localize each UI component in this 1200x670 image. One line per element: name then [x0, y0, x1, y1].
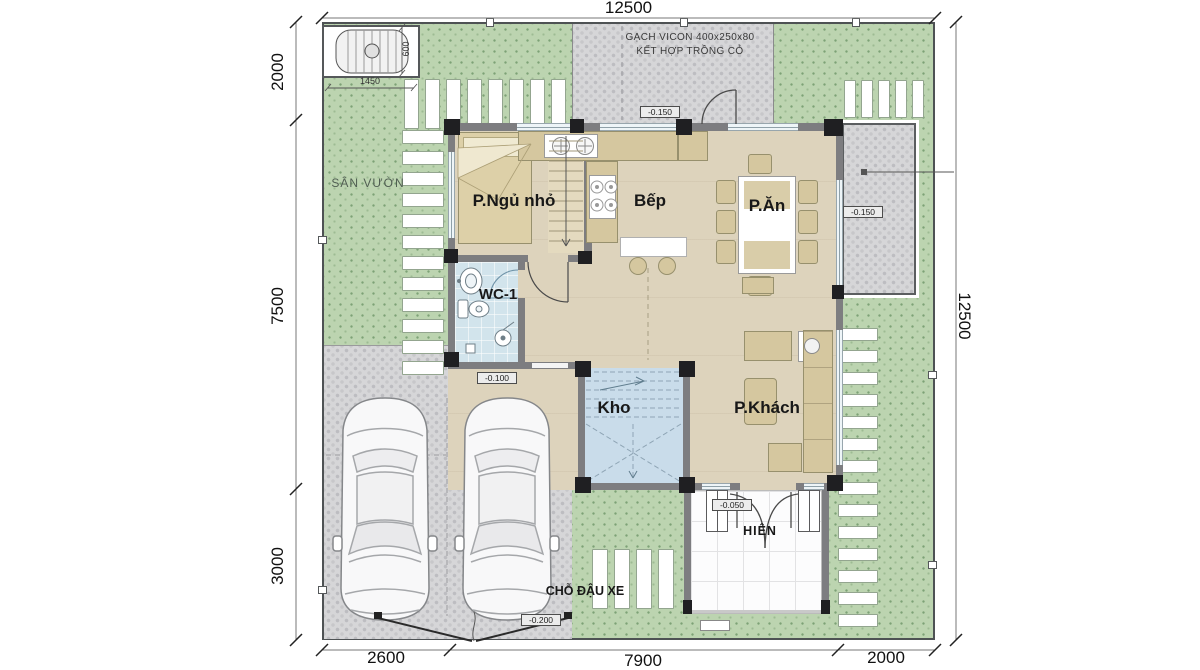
stepping-stone	[838, 548, 878, 561]
kitchen-counter	[518, 131, 678, 161]
wall	[518, 298, 525, 362]
stepping-stone	[530, 79, 545, 129]
stepping-stone	[838, 460, 878, 473]
column	[570, 119, 584, 133]
table-runner	[744, 241, 790, 269]
fence-post	[318, 586, 327, 594]
room-label-storage: Kho	[588, 398, 640, 418]
room-label-garden: SÂN VƯỜN	[322, 176, 414, 190]
elevation-marker: -0.100	[477, 372, 517, 384]
stepping-stone	[467, 79, 482, 129]
dimension-top: 12500	[322, 0, 935, 18]
sofa-seat	[768, 443, 802, 472]
wall	[796, 483, 804, 490]
stepping-stone	[402, 298, 444, 312]
stepping-stone	[488, 79, 503, 129]
storage-floor	[581, 368, 683, 483]
room-label-parking: CHỖ ĐẬU XE	[518, 584, 652, 598]
stepping-stone	[592, 549, 608, 609]
stepping-stone	[895, 80, 907, 118]
stepping-stone	[402, 130, 444, 144]
porch-column	[821, 600, 830, 614]
column	[575, 361, 591, 377]
dimension-septic-height: 600	[401, 37, 411, 61]
chair	[798, 240, 818, 264]
column	[444, 249, 458, 263]
stepping-stone	[402, 193, 444, 207]
porch-wall	[684, 490, 691, 612]
window	[728, 123, 798, 131]
patio-door	[836, 180, 843, 285]
wc-floor	[455, 262, 518, 362]
window	[448, 152, 455, 238]
column	[444, 119, 460, 135]
column	[827, 475, 843, 491]
chair	[748, 154, 772, 174]
window	[804, 483, 824, 490]
column	[578, 251, 592, 264]
stepping-stone	[402, 361, 444, 375]
stepping-stone	[404, 79, 419, 129]
room-label-living: P.Khách	[710, 398, 824, 418]
column	[824, 119, 843, 136]
stove-icon	[544, 134, 598, 158]
stool	[629, 257, 647, 275]
column	[679, 361, 695, 377]
stepping-stone	[838, 570, 878, 583]
dimension-left-2: 7500	[268, 278, 288, 334]
stepping-stone	[844, 80, 856, 118]
porch-step	[691, 610, 822, 613]
stepping-stone	[838, 328, 878, 341]
room-label-kitchen: Bếp	[620, 191, 680, 211]
stepping-stone	[425, 79, 440, 129]
floor-plan-canvas: -0.150 -0.150 -0.100 -0.050 -0.200 GẠCH …	[0, 0, 1200, 670]
stepping-stone	[402, 340, 444, 354]
stepping-stone	[861, 80, 873, 118]
fence-post	[928, 371, 937, 379]
dimension-bottom-1: 2600	[346, 648, 426, 668]
window	[600, 123, 676, 131]
stepping-stone	[838, 504, 878, 517]
stepping-stone	[402, 256, 444, 270]
dimension-left-1: 2000	[268, 44, 288, 100]
stepping-stone	[838, 372, 878, 385]
room-label-wc: WC-1	[466, 286, 530, 303]
stool	[658, 257, 676, 275]
column	[832, 285, 844, 299]
window	[517, 123, 570, 131]
window	[702, 483, 730, 490]
door-sidelight	[798, 490, 820, 532]
cooktop-icon	[589, 175, 616, 219]
stepping-stone	[402, 214, 444, 228]
stepping-stone	[838, 526, 878, 539]
backyard-note-line2: KẾT HỢP TRỒNG CỎ	[590, 46, 790, 57]
door-sidelight	[706, 490, 728, 532]
stepping-stone	[402, 151, 444, 165]
wall	[578, 483, 690, 490]
elevation-marker: -0.050	[712, 499, 752, 511]
island-counter	[620, 237, 687, 257]
stepping-stone	[402, 319, 444, 333]
room-label-bedroom: P.Ngủ nhỏ	[458, 191, 570, 211]
wall	[692, 123, 728, 131]
lamp-icon	[804, 338, 820, 354]
elevation-marker: -0.200	[521, 614, 561, 626]
stepping-stone	[838, 438, 878, 451]
elevation-marker: -0.150	[640, 106, 680, 118]
wall	[730, 483, 740, 490]
room-label-porch: HIÊN	[730, 524, 790, 538]
tv-bench	[742, 277, 774, 294]
wall	[448, 255, 528, 262]
dimension-right: 12500	[954, 286, 974, 346]
porch-column	[683, 600, 692, 614]
stepping-stone	[838, 394, 878, 407]
fence-post	[928, 561, 937, 569]
chair	[716, 240, 736, 264]
room-label-dining: P.Ăn	[732, 196, 802, 216]
wall	[578, 365, 585, 490]
stepping-stone	[838, 614, 878, 627]
stepping-stone	[658, 549, 674, 609]
window	[836, 330, 843, 465]
stepping-stone	[838, 482, 878, 495]
wall	[683, 365, 690, 490]
dimension-left-3: 3000	[268, 538, 288, 594]
stepping-stone	[402, 235, 444, 249]
vent	[532, 363, 568, 368]
stepping-stone	[838, 350, 878, 363]
backyard-note-line1: GẠCH VICON 400x250x80	[590, 32, 790, 43]
stepping-stone	[636, 549, 652, 609]
stepping-stone	[551, 79, 566, 129]
stepping-stone	[838, 592, 878, 605]
fence-post	[852, 18, 860, 27]
fence-post	[680, 18, 688, 27]
stepping-stone	[912, 80, 924, 118]
dimension-bottom-3: 2000	[846, 648, 926, 668]
fridge-icon	[678, 131, 708, 161]
stepping-stone	[614, 549, 630, 609]
stepping-stone	[838, 416, 878, 429]
column	[575, 477, 591, 493]
dimension-septic-width: 1450	[338, 76, 402, 86]
stepping-stone	[878, 80, 890, 118]
wall	[518, 262, 525, 270]
column	[444, 352, 459, 367]
armchair	[744, 331, 792, 361]
column	[676, 119, 692, 135]
column	[679, 477, 695, 493]
dimension-bottom-2: 7900	[600, 651, 686, 670]
fence-post	[486, 18, 494, 27]
porch-wall	[822, 490, 829, 612]
fence-post	[318, 236, 327, 244]
stepping-stone	[402, 277, 444, 291]
stepping-stone	[509, 79, 524, 129]
doormat	[700, 620, 730, 631]
elevation-marker: -0.150	[843, 206, 883, 218]
